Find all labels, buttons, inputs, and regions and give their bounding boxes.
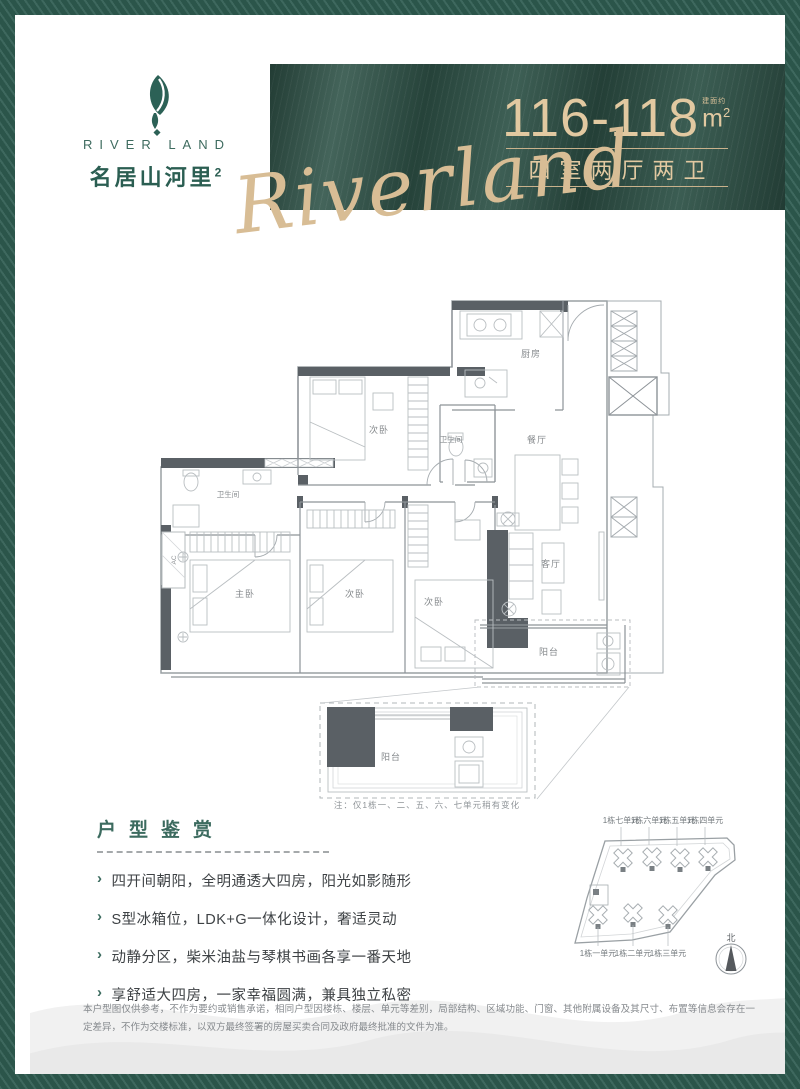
room-label-bath-top: 卫生间 (440, 434, 463, 444)
area-unit-wrap: 建面约 m2 (702, 96, 730, 131)
room-label-dining: 餐厅 (527, 434, 547, 445)
appreciation-item-text: 四开间朝阳，全明通透大四房，阳光如影随形 (112, 870, 412, 891)
appreciation-item-text: S型冰箱位，LDK+G一体化设计，奢适灵动 (112, 908, 398, 929)
room-label-living: 客厅 (541, 558, 561, 569)
room-label-master: 主卧 (235, 588, 255, 599)
service-core (607, 301, 669, 673)
bullet-arrow-icon: › (97, 908, 103, 926)
dining-furniture (515, 455, 578, 530)
bullet-arrow-icon: › (97, 870, 103, 888)
appreciation-item: › 四开间朝阳，全明通透大四房，阳光如影随形 (97, 870, 517, 891)
room-label-balcony: 阳台 (539, 646, 559, 657)
leaf-icon (134, 73, 180, 139)
brand-name-en: RIVER LAND (57, 137, 257, 152)
site-buildings (584, 843, 722, 929)
ac-platform: AC (162, 532, 185, 588)
kitchen-fixtures (460, 311, 563, 397)
room-label-bedroom-right: 次卧 (424, 596, 444, 607)
disclaimer-text: 本户型图仅供参考，不作为要约或销售承诺，相同户型因楼栋、楼层、单元等差别，局部结… (83, 1001, 755, 1037)
bedroom-mid-furniture (307, 510, 395, 632)
room-label-bedroom-mid: 次卧 (345, 588, 365, 599)
appreciation-separator (97, 851, 329, 853)
bedroom-top-furniture (310, 377, 428, 470)
area-unit: m2 (702, 106, 730, 131)
floor-plan: AC (143, 287, 691, 819)
balcony-detail (320, 703, 535, 798)
master-furniture (178, 532, 290, 642)
room-label-ac: AC (171, 555, 178, 564)
compass-north-label: 北 (726, 933, 735, 943)
plan-note: 注：仅1栋一、二、五、六、七单元稍有变化 (334, 800, 520, 810)
appreciation-item: › S型冰箱位，LDK+G一体化设计，奢适灵动 (97, 908, 517, 929)
room-label-kitchen: 厨房 (521, 348, 541, 359)
brand-sup: 2 (215, 166, 225, 180)
room-label-balcony-detail: 阳台 (381, 751, 401, 762)
site-label-unit4: 1栋四单元 (687, 815, 723, 825)
room-label-bedroom-top: 次卧 (369, 424, 389, 435)
appreciation-title: 户型鉴赏 (97, 815, 517, 842)
bedroom-right-furniture (408, 505, 493, 668)
page-inner: RIVER LAND 名居山河里2 116-118 建面约 m2 四室两厅两卫 … (15, 15, 785, 1074)
brand-name-cn: 名居山河里2 (57, 160, 257, 192)
room-label-bath-left: 卫生间 (217, 489, 240, 499)
brand-logo: RIVER LAND 名居山河里2 (57, 73, 257, 192)
brochure-page: RIVER LAND 名居山河里2 116-118 建面约 m2 四室两厅两卫 … (0, 0, 800, 1089)
